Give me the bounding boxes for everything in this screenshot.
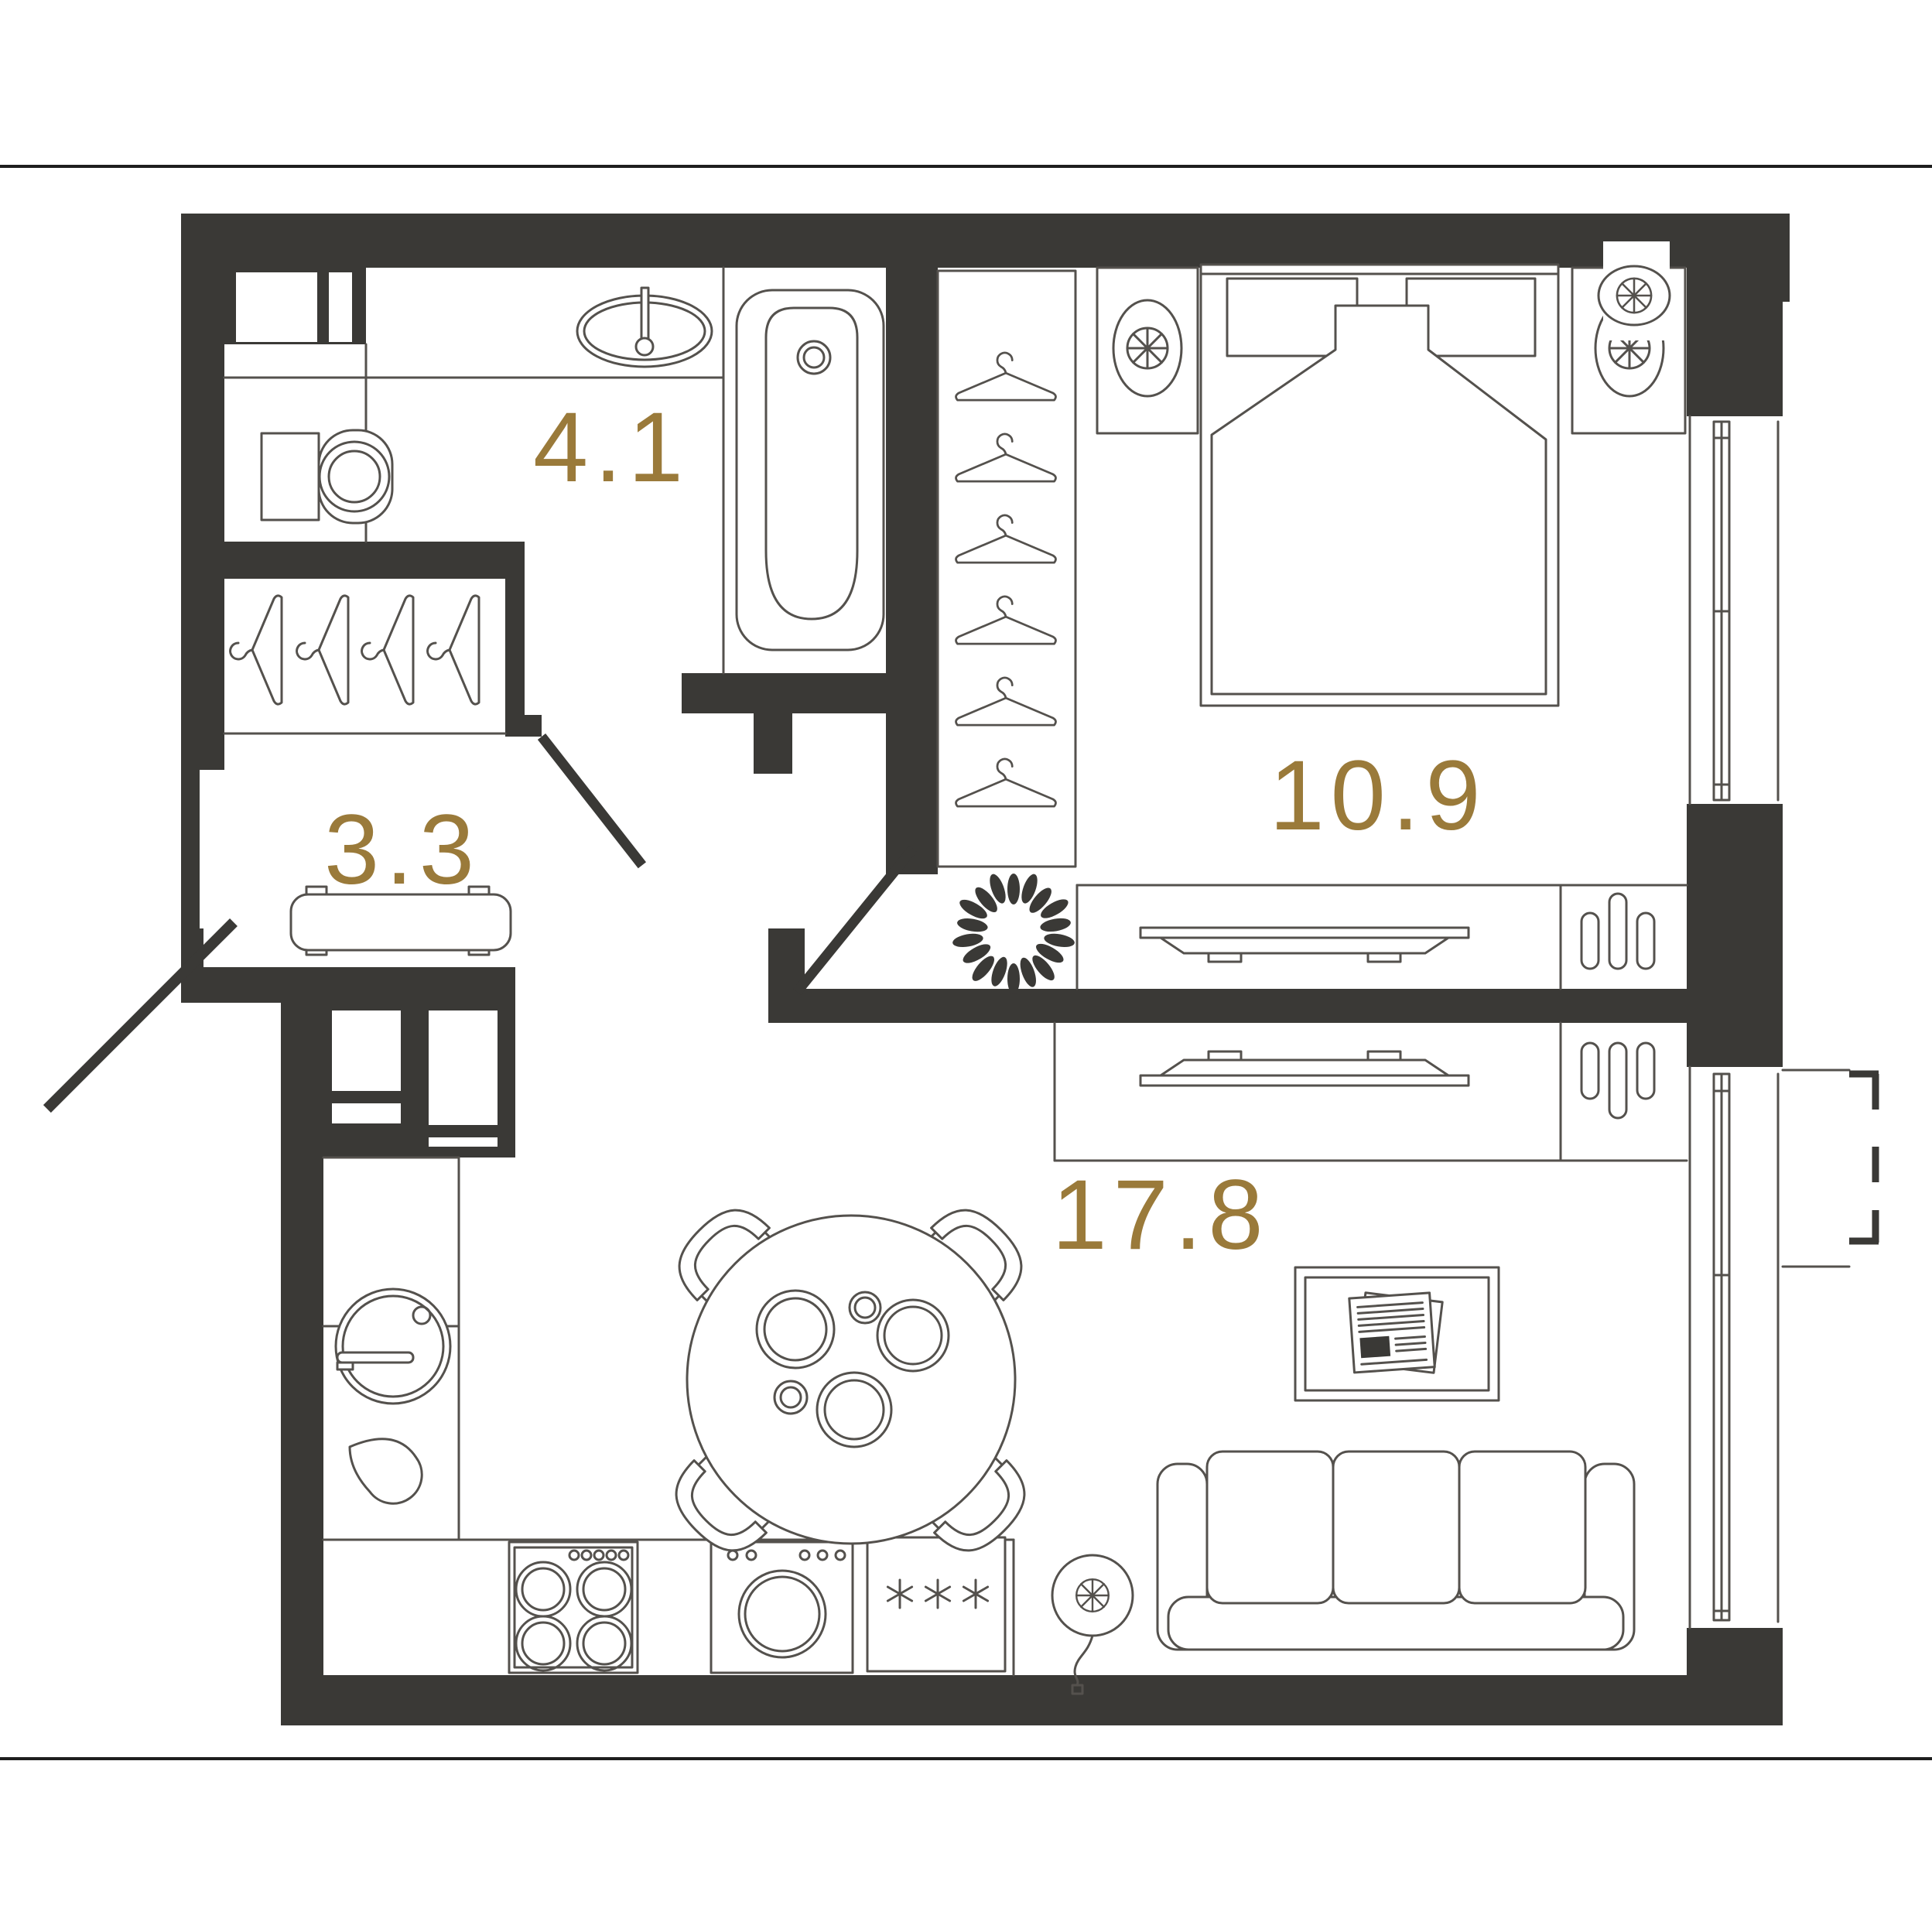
living-window-icon [1690, 1067, 1778, 1628]
kitchen-sink-icon [336, 1289, 450, 1404]
teardrop-icon [350, 1439, 422, 1503]
tv-icon [1140, 928, 1469, 962]
sofa-icon [1157, 1452, 1634, 1650]
tv-icon [1140, 1051, 1469, 1086]
hanger-icon [362, 596, 413, 704]
bedroom-door-swing-icon [793, 846, 917, 995]
duct-niche [329, 272, 352, 342]
ac-fan-icon [1599, 266, 1670, 325]
bedroom: 10.9 [938, 241, 1687, 994]
floor-plan-drawing: 4.1 3.3 [0, 0, 1932, 1932]
balcony-dashed-icon [1783, 1070, 1879, 1267]
hanger-icon [428, 596, 479, 704]
shaft-niche [429, 1137, 498, 1147]
plant-icon [952, 872, 1075, 994]
tv-stand-icon [1055, 1023, 1687, 1161]
living-kitchen: 17.8 [323, 1023, 1687, 1694]
bedroom-area-label: 10.9 [1269, 740, 1486, 851]
shaft-niche [332, 1103, 401, 1123]
stove-icon [509, 1542, 638, 1673]
fan-cord-icon [1052, 1555, 1133, 1694]
sink-icon [577, 288, 712, 367]
toilet-icon [262, 430, 392, 523]
fridge-snowflake-icon [867, 1530, 1005, 1671]
bathroom-area-label: 4.1 [533, 392, 689, 503]
dining-table-icon [660, 1194, 1041, 1567]
wardrobe-icon [938, 271, 1075, 867]
duct-niche [236, 272, 317, 342]
bathroom-door-swing-icon [538, 733, 646, 868]
nightstand-lamp-icon [1097, 268, 1198, 433]
shaft-niche [332, 1010, 401, 1091]
hallway: 3.3 [224, 596, 511, 955]
bedroom-window-icon [1690, 416, 1778, 804]
hanger-icon [297, 596, 348, 704]
shaft-niche [429, 1010, 498, 1125]
dresser-icon [1077, 885, 1687, 989]
washing-machine-icon [711, 1542, 853, 1673]
bed-icon [1201, 265, 1558, 706]
floor-plan-page: 4.1 3.3 [0, 0, 1932, 1932]
entrance-door-swing-icon [43, 918, 238, 1113]
hallway-area-label: 3.3 [324, 795, 480, 905]
hanger-icon [231, 596, 282, 704]
bathtub-icon [737, 290, 884, 650]
picture-newspaper-icon [1295, 1267, 1499, 1400]
living-area-label: 17.8 [1051, 1160, 1269, 1270]
